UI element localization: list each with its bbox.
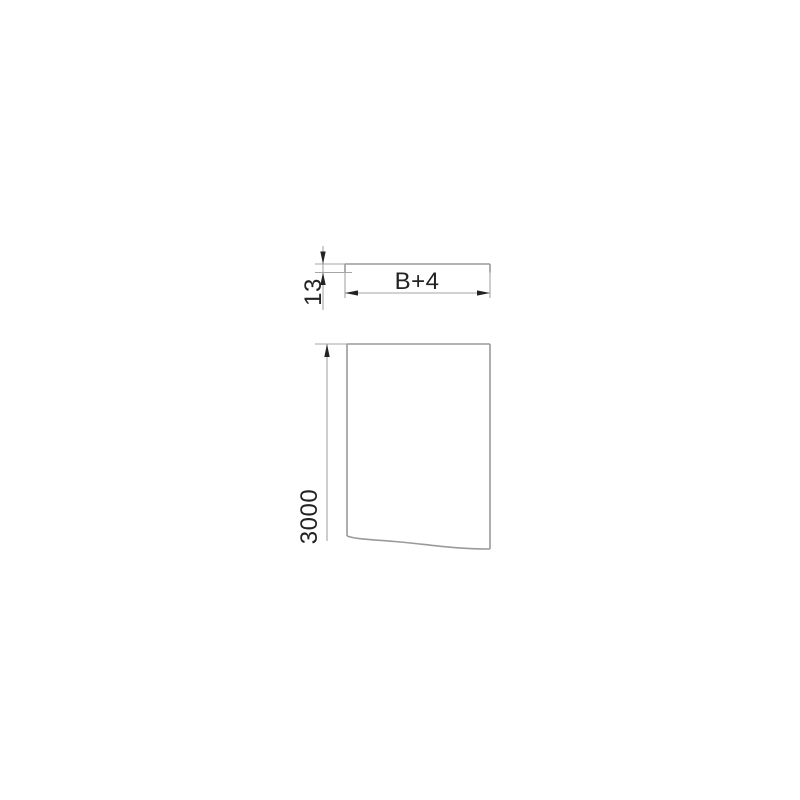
width-dim-label: B+4: [395, 268, 440, 295]
height-dim-label: 13: [300, 278, 327, 306]
drawing-background: [0, 0, 800, 800]
technical-drawing: 13 B+4 3000: [0, 0, 800, 800]
drawing-canvas: 13 B+4 3000: [0, 0, 800, 800]
length-dim-label: 3000: [296, 489, 323, 544]
